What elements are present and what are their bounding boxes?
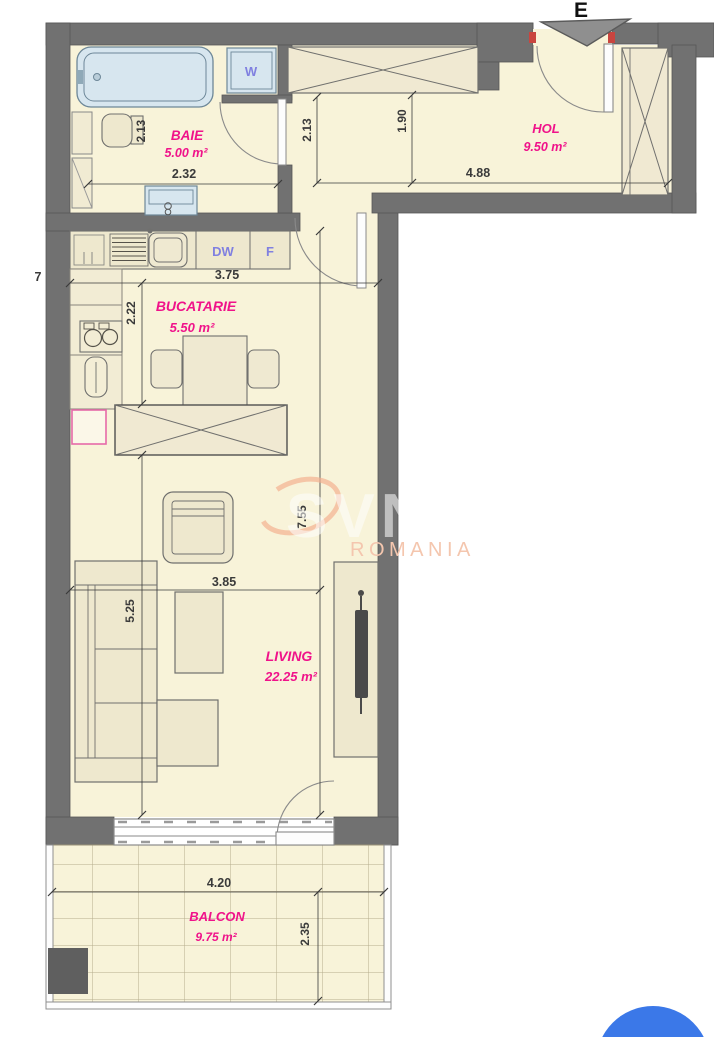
kitchen-counter: DW F xyxy=(70,229,290,270)
hall-wardrobe xyxy=(622,48,668,195)
radiator xyxy=(72,410,106,444)
armchair xyxy=(163,492,233,563)
floor-plan-page: E W xyxy=(0,0,714,1037)
dim-kitchen-depth: 2.22 xyxy=(124,301,138,325)
bathroom-shelves xyxy=(72,112,92,208)
dim-kitchen-width: 3.75 xyxy=(215,268,239,282)
watermark-region: ROMANIA xyxy=(350,539,475,561)
dim-living-width: 3.85 xyxy=(212,575,236,589)
washer-label: W xyxy=(245,64,258,79)
dim-hol-depth: 1.90 xyxy=(395,109,409,133)
living-area: 22.25 m² xyxy=(264,669,318,684)
dim-sofa-length: 5.25 xyxy=(123,599,137,623)
balcony-structure xyxy=(46,845,391,1009)
dim-baie-depth: 2.13 xyxy=(136,120,148,142)
coffee-table xyxy=(175,592,223,673)
balcon-name: BALCON xyxy=(189,909,245,924)
boiler xyxy=(85,357,107,397)
dim-balcon-depth: 2.35 xyxy=(298,922,312,946)
hall-closet xyxy=(288,47,478,93)
washing-machine: W xyxy=(227,48,276,93)
balcon-area: 9.75 m² xyxy=(195,930,237,944)
living-wardrobe xyxy=(115,405,287,455)
bucatarie-name: BUCATARIE xyxy=(156,298,237,314)
dim-hol-width: 4.88 xyxy=(466,166,490,180)
balcony-pillar xyxy=(48,948,88,994)
bucatarie-area: 5.50 m² xyxy=(170,320,215,335)
hol-area: 9.50 m² xyxy=(523,140,567,154)
living-name: LIVING xyxy=(266,648,313,664)
baie-name: BAIE xyxy=(171,128,204,143)
sofa-chaise xyxy=(157,700,218,766)
floor-plan: E W xyxy=(0,0,714,1037)
hob xyxy=(80,321,122,352)
dim-baie-width: 2.32 xyxy=(172,167,196,181)
dishwasher-label: DW xyxy=(212,244,234,259)
watermark: SVN ROMANIA xyxy=(254,470,475,561)
dim-partial-left: 7 xyxy=(35,270,42,284)
dim-balcon-width: 4.20 xyxy=(207,876,231,890)
bathtub xyxy=(77,47,213,107)
baie-area: 5.00 m² xyxy=(164,146,208,160)
dim-closet-depth: 2.13 xyxy=(300,118,314,142)
tv xyxy=(355,610,368,698)
entrance-letter: E xyxy=(574,0,588,22)
fridge-label: F xyxy=(266,244,274,259)
hol-name: HOL xyxy=(532,121,560,136)
tv-unit xyxy=(334,562,378,757)
bathroom-sink xyxy=(145,186,197,215)
